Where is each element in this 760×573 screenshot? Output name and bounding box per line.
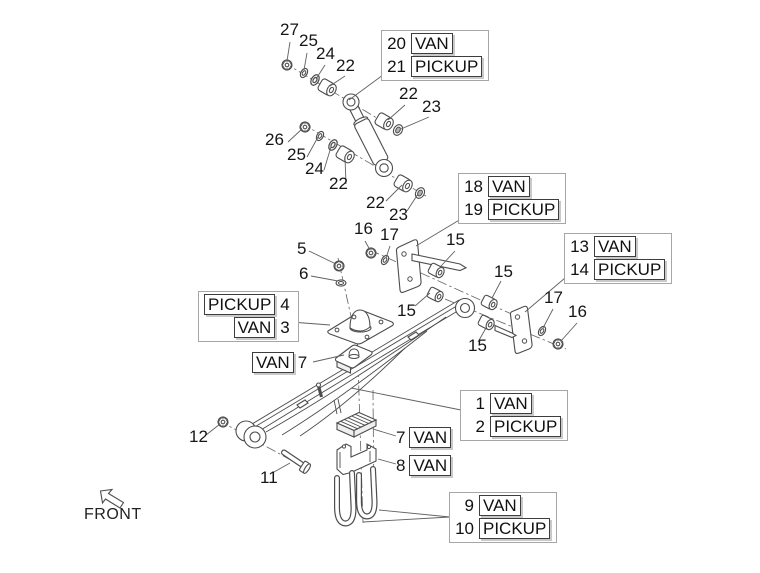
variant-tag-van: VAN <box>411 33 453 54</box>
part-label-15: 15 <box>446 231 465 249</box>
parts-diagram-page: 27 25 24 22 22 23 26 25 24 22 22 23 16 1… <box>0 0 760 573</box>
callout-shock-20-21: 20 VAN 21 PICKUP <box>381 30 489 81</box>
part-label-6: 6 <box>299 265 308 283</box>
variant-tag-pickup: PICKUP <box>204 294 275 315</box>
nut-5 <box>334 261 344 271</box>
callout-row: 19 PICKUP <box>464 199 559 220</box>
shackle-plate <box>510 306 532 353</box>
variant-tag-pickup: PICKUP <box>594 259 665 280</box>
callout-clamp-pad-7-van: 7 VAN <box>396 427 451 448</box>
washer-17 <box>380 254 390 266</box>
callout-number: 8 <box>396 457 405 475</box>
callout-number: 18 <box>464 177 483 197</box>
variant-tag-van: VAN <box>234 317 276 338</box>
part-label-12: 12 <box>189 428 208 446</box>
part-label-22: 22 <box>329 175 348 193</box>
variant-tag-pickup: PICKUP <box>490 416 561 437</box>
clamp-pad <box>337 413 376 438</box>
callout-number: 1 <box>466 394 485 414</box>
part-label-16: 16 <box>568 303 587 321</box>
callout-shackle-13-14: 13 VAN 14 PICKUP <box>564 233 672 284</box>
part-label-17: 17 <box>544 289 563 307</box>
bump-stop-plate <box>328 261 394 344</box>
part-label-15: 15 <box>468 337 487 355</box>
callout-bump-plate-4-3: PICKUP 4 VAN 3 <box>198 291 299 342</box>
nut-26 <box>298 120 312 134</box>
callout-number: 13 <box>570 237 589 257</box>
callout-row: VAN 3 <box>204 317 292 338</box>
part-label-24: 24 <box>316 45 335 63</box>
callout-number: 4 <box>280 295 292 315</box>
variant-tag-van: VAN <box>594 236 636 257</box>
part-label-15: 15 <box>397 302 416 320</box>
part-label-5: 5 <box>297 240 306 258</box>
bushing-22 <box>317 78 338 98</box>
variant-tag-van: VAN <box>488 176 530 197</box>
callout-row: 18 VAN <box>464 176 559 197</box>
callout-number: 7 <box>298 354 307 372</box>
washer-24 <box>327 138 339 151</box>
part-label-15: 15 <box>494 263 513 281</box>
part-label-17: 17 <box>380 226 399 244</box>
u-bolts <box>337 469 375 524</box>
part-label-22: 22 <box>366 194 385 212</box>
part-label-25: 25 <box>287 146 306 164</box>
callout-row: 2 PICKUP <box>466 416 561 437</box>
variant-tag-pickup: PICKUP <box>411 56 482 77</box>
callout-row: 1 VAN <box>466 393 561 414</box>
leader-lines <box>206 42 577 522</box>
variant-tag-van: VAN <box>252 352 294 373</box>
callout-row: 21 PICKUP <box>387 56 482 77</box>
front-direction-label: FRONT <box>84 506 142 524</box>
callout-u-bolts-9-10: 9 VAN 10 PICKUP <box>449 492 557 543</box>
callout-number: 2 <box>466 417 485 437</box>
callout-number: 20 <box>387 34 406 54</box>
callout-row: 14 PICKUP <box>570 259 665 280</box>
callout-row: 13 VAN <box>570 236 665 257</box>
spring-center-bolt <box>317 383 321 387</box>
part-label-23: 23 <box>389 206 408 224</box>
shock-absorber <box>343 94 393 177</box>
part-label-27: 27 <box>280 21 299 39</box>
part-label-16: 16 <box>354 220 373 238</box>
part-label-26: 26 <box>265 131 284 149</box>
variant-tag-van: VAN <box>409 427 451 448</box>
callout-row: 10 PICKUP <box>455 518 550 539</box>
callout-number: 9 <box>455 496 474 516</box>
callout-row: 9 VAN <box>455 495 550 516</box>
callout-number: 21 <box>387 57 406 77</box>
washer-17 <box>537 325 547 337</box>
variant-tag-van: VAN <box>490 393 532 414</box>
part-label-22: 22 <box>336 57 355 75</box>
bushing-15 <box>480 294 498 311</box>
part-label-24: 24 <box>305 160 324 178</box>
part-label-23: 23 <box>422 98 441 116</box>
callout-clamp-bracket-8-van: 8 VAN <box>396 455 451 476</box>
callout-number: 10 <box>455 519 474 539</box>
callout-row: 20 VAN <box>387 33 482 54</box>
nut-12 <box>216 415 230 429</box>
callout-row: PICKUP 4 <box>204 294 292 315</box>
callout-number: 3 <box>280 318 292 338</box>
callout-pad-upper-van-7: VAN 7 <box>252 352 307 373</box>
variant-tag-van: VAN <box>479 495 521 516</box>
callout-spring-1-2: 1 VAN 2 PICKUP <box>460 390 568 441</box>
callout-hanger-18-19: 18 VAN 19 PICKUP <box>458 173 566 224</box>
variant-tag-pickup: PICKUP <box>488 199 559 220</box>
bushing-15 <box>426 286 444 303</box>
part-label-11: 11 <box>260 469 278 487</box>
bushing-22 <box>374 112 395 132</box>
bushing-15 <box>477 314 495 331</box>
part-label-22: 22 <box>399 85 418 103</box>
variant-tag-van: VAN <box>409 455 451 476</box>
nut-16 <box>364 246 378 260</box>
exploded-view-drawing <box>0 0 760 573</box>
callout-number: 19 <box>464 200 483 220</box>
callout-number: 14 <box>570 260 589 280</box>
bump-stop-dome <box>350 310 370 331</box>
ring-23 <box>392 123 405 137</box>
callout-number: 7 <box>396 429 405 447</box>
variant-tag-pickup: PICKUP <box>479 518 550 539</box>
bushing-22 <box>335 145 356 165</box>
